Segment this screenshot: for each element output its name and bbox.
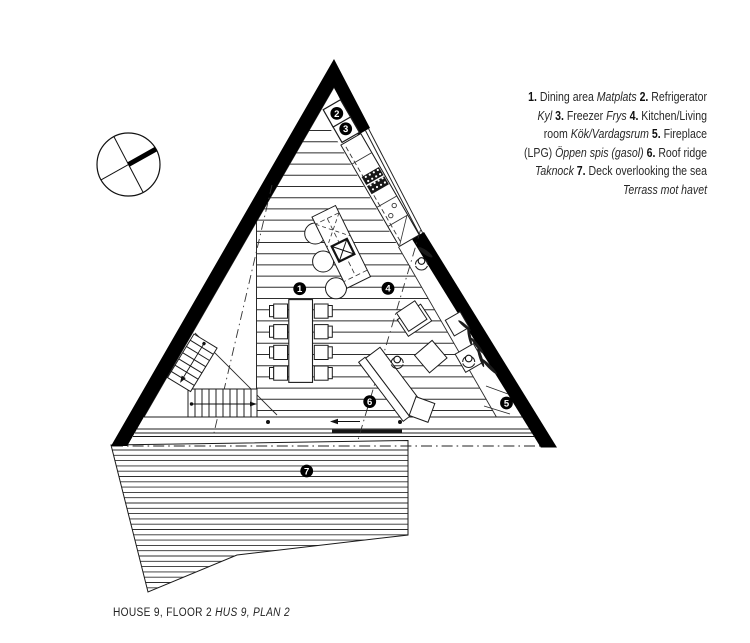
svg-text:6: 6	[367, 397, 372, 408]
svg-text:3: 3	[343, 124, 348, 135]
svg-text:5: 5	[504, 398, 510, 409]
svg-text:1: 1	[297, 284, 303, 295]
svg-text:7: 7	[304, 466, 309, 477]
svg-text:2: 2	[334, 109, 339, 120]
svg-text:4: 4	[385, 284, 391, 295]
